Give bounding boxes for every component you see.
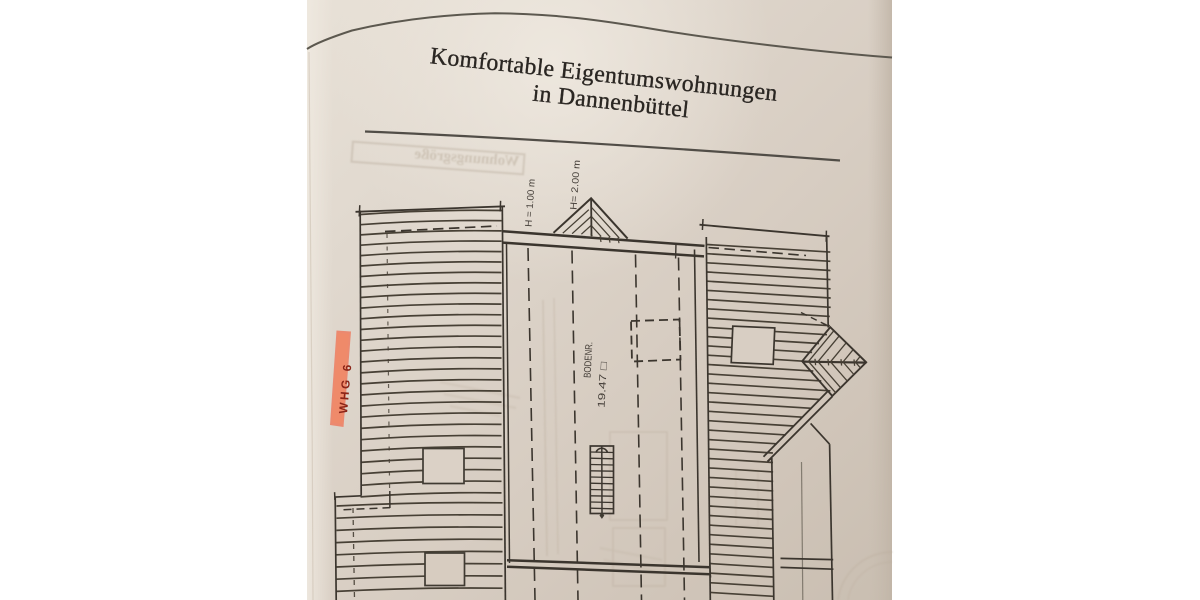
svg-text:BODENR.: BODENR.	[583, 342, 596, 379]
